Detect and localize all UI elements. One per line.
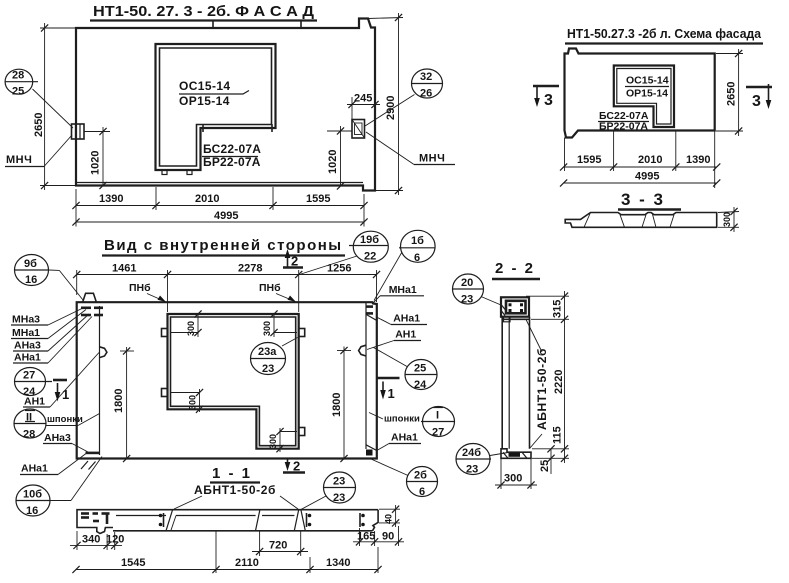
svg-text:ОР15-14: ОР15-14 bbox=[179, 94, 230, 108]
svg-text:28: 28 bbox=[23, 429, 35, 441]
svg-text:720: 720 bbox=[269, 540, 287, 552]
svg-text:120: 120 bbox=[106, 534, 124, 546]
svg-text:МНа1: МНа1 bbox=[389, 284, 417, 296]
svg-text:НТ1-50.27.3 -2б л. Схема фасад: НТ1-50.27.3 -2б л. Схема фасада bbox=[567, 26, 762, 41]
svg-text:1020: 1020 bbox=[90, 151, 102, 175]
svg-text:АН1: АН1 bbox=[24, 396, 45, 408]
svg-text:23: 23 bbox=[461, 294, 473, 306]
svg-text:ОС15-14: ОС15-14 bbox=[179, 79, 231, 93]
svg-text:1390: 1390 bbox=[99, 193, 123, 205]
svg-text:245: 245 bbox=[354, 93, 372, 105]
svg-text:АБНТ1-50-2б: АБНТ1-50-2б bbox=[535, 348, 549, 430]
svg-text:АНа3: АНа3 bbox=[14, 340, 41, 352]
svg-text:16: 16 bbox=[25, 274, 37, 286]
svg-text:АНа1: АНа1 bbox=[393, 313, 420, 325]
svg-text:Вид с внутренней стороны: Вид с внутренней стороны bbox=[104, 237, 343, 254]
svg-text:АНа1: АНа1 bbox=[14, 352, 41, 364]
svg-text:I: I bbox=[436, 410, 439, 422]
svg-text:ОС15-14: ОС15-14 bbox=[626, 75, 669, 87]
svg-text:27: 27 bbox=[432, 427, 444, 439]
svg-text:1340: 1340 bbox=[326, 557, 350, 569]
svg-text:300: 300 bbox=[722, 212, 732, 227]
svg-text:4995: 4995 bbox=[635, 171, 659, 183]
svg-text:165: 165 bbox=[357, 531, 375, 543]
svg-text:6: 6 bbox=[419, 486, 425, 498]
svg-text:1: 1 bbox=[388, 386, 395, 401]
svg-text:4995: 4995 bbox=[214, 210, 238, 222]
svg-text:ПНб: ПНб bbox=[259, 282, 281, 294]
svg-text:25: 25 bbox=[414, 363, 426, 375]
svg-text:300: 300 bbox=[504, 473, 522, 485]
svg-text:2650: 2650 bbox=[33, 113, 45, 137]
svg-text:315: 315 bbox=[552, 300, 564, 318]
svg-text:26: 26 bbox=[420, 88, 432, 100]
svg-text:23а: 23а bbox=[258, 346, 277, 358]
svg-text:16: 16 bbox=[26, 505, 38, 517]
svg-text:3 - 3: 3 - 3 bbox=[621, 190, 665, 209]
svg-text:300: 300 bbox=[186, 321, 196, 336]
svg-text:1390: 1390 bbox=[686, 154, 710, 166]
svg-text:115: 115 bbox=[552, 426, 564, 444]
svg-text:24: 24 bbox=[414, 379, 427, 391]
svg-text:АН1: АН1 bbox=[395, 329, 416, 341]
svg-text:НТ1-50. 27. 3 - 2б. Ф А С А Д: НТ1-50. 27. 3 - 2б. Ф А С А Д bbox=[93, 3, 314, 20]
svg-text:АНа3: АНа3 bbox=[44, 432, 71, 444]
svg-text:1461: 1461 bbox=[112, 263, 136, 275]
svg-text:2б: 2б bbox=[414, 470, 427, 482]
svg-text:АБНТ1-50-2б: АБНТ1-50-2б bbox=[194, 483, 276, 497]
svg-text:шпонки: шпонки bbox=[47, 414, 83, 425]
svg-text:2278: 2278 bbox=[238, 263, 262, 275]
svg-text:23: 23 bbox=[466, 464, 478, 476]
svg-text:9б: 9б bbox=[24, 258, 37, 270]
svg-text:1545: 1545 bbox=[121, 557, 145, 569]
svg-text:300: 300 bbox=[262, 321, 272, 336]
svg-text:2 - 2: 2 - 2 bbox=[495, 260, 535, 277]
svg-text:32: 32 bbox=[420, 71, 432, 83]
svg-text:МНа1: МНа1 bbox=[12, 327, 40, 339]
svg-text:МНЧ: МНЧ bbox=[6, 154, 32, 166]
svg-text:27: 27 bbox=[23, 370, 35, 382]
svg-text:3: 3 bbox=[544, 92, 553, 109]
svg-text:2220: 2220 bbox=[553, 370, 565, 394]
svg-text:20: 20 bbox=[461, 277, 473, 289]
svg-text:90: 90 bbox=[382, 531, 394, 543]
svg-text:АНа1: АНа1 bbox=[21, 463, 48, 475]
svg-text:3: 3 bbox=[752, 93, 761, 110]
svg-text:БР22-07А: БР22-07А bbox=[599, 121, 648, 133]
svg-text:6: 6 bbox=[414, 252, 420, 264]
svg-text:300: 300 bbox=[268, 434, 278, 449]
svg-text:1595: 1595 bbox=[577, 154, 601, 166]
svg-text:1800: 1800 bbox=[113, 389, 125, 413]
svg-text:2: 2 bbox=[291, 254, 298, 269]
svg-text:1595: 1595 bbox=[306, 193, 330, 205]
svg-text:шпонки: шпонки bbox=[384, 414, 420, 425]
svg-text:1020: 1020 bbox=[327, 150, 339, 174]
svg-text:БС22-07А: БС22-07А bbox=[203, 142, 261, 156]
svg-text:2650: 2650 bbox=[726, 82, 738, 106]
svg-text:АНа1: АНа1 bbox=[391, 432, 418, 444]
svg-text:2900: 2900 bbox=[385, 96, 397, 120]
svg-text:19б: 19б bbox=[360, 234, 379, 246]
svg-text:ПНб: ПНб bbox=[129, 282, 151, 294]
svg-text:10б: 10б bbox=[23, 489, 42, 501]
svg-text:1800: 1800 bbox=[331, 393, 343, 417]
svg-text:МНЧ: МНЧ bbox=[419, 153, 445, 165]
svg-text:ОР15-14: ОР15-14 bbox=[626, 88, 668, 100]
svg-text:2010: 2010 bbox=[638, 154, 662, 166]
svg-text:23: 23 bbox=[262, 363, 274, 375]
svg-text:1 - 1: 1 - 1 bbox=[212, 465, 252, 482]
svg-text:23: 23 bbox=[333, 476, 345, 488]
svg-text:1б: 1б bbox=[411, 235, 424, 247]
svg-text:2: 2 bbox=[293, 459, 300, 474]
svg-text:24б: 24б bbox=[462, 447, 481, 459]
svg-text:28: 28 bbox=[12, 70, 24, 82]
svg-text:25: 25 bbox=[12, 86, 24, 98]
svg-text:МНа3: МНа3 bbox=[12, 314, 40, 326]
svg-text:40: 40 bbox=[384, 514, 394, 524]
svg-text:25: 25 bbox=[539, 460, 551, 472]
svg-text:300: 300 bbox=[188, 395, 198, 410]
svg-text:23: 23 bbox=[333, 492, 345, 504]
svg-text:БР22-07А: БР22-07А bbox=[203, 155, 261, 169]
svg-text:2010: 2010 bbox=[195, 193, 219, 205]
svg-text:2110: 2110 bbox=[235, 557, 259, 569]
svg-text:340: 340 bbox=[82, 534, 100, 546]
svg-text:22: 22 bbox=[364, 251, 376, 263]
